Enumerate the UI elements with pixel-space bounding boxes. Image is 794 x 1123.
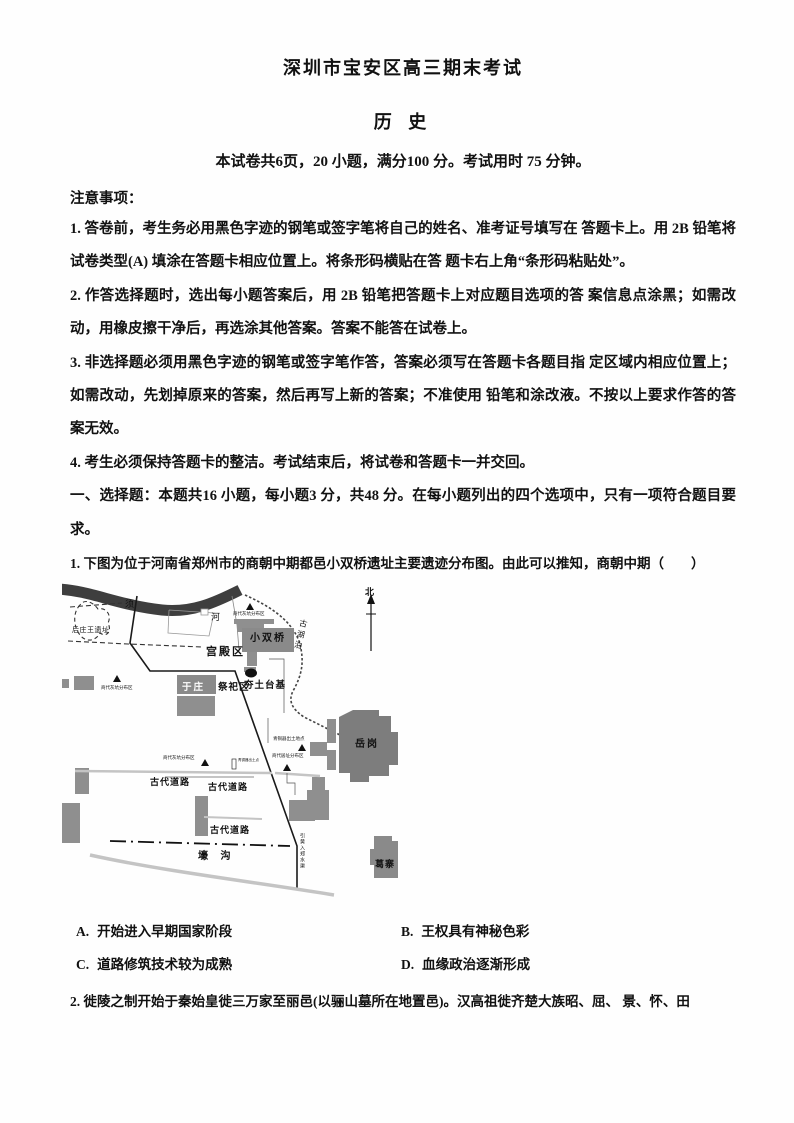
enclosure-notch [201,609,208,615]
map-label-yuegang: 岳岗 [355,735,379,750]
feature-block [177,696,215,716]
map-label-ash-pit-area-road: 商代灰坑分布区 [163,755,195,761]
ancient-road-line [204,817,262,819]
map-label-ash-pit-area-left: 商代灰坑分布区 [101,685,133,691]
page-title: 深圳市宝安区高三期末考试 [70,54,736,80]
q1-option-a: A.开始进入早期国家阶段 [76,915,401,948]
feature-block [310,742,327,756]
map-label-north: 北 [365,585,374,598]
feature-block [289,800,315,821]
ash-pit-marker [113,675,121,682]
map-label-canal: 引黄入郑水渠 [298,833,305,869]
q1-option-c-label: C. [76,957,89,972]
q1-option-c: C.道路修筑技术较为成熟 [76,948,401,981]
dwelling-site-marker [283,764,291,771]
notice-item-2: 2. 作答选择题时，选出每小题答案后，用 2B 铅笔把答题卡上对应题目选项的答 … [70,280,736,347]
map-label-xiaoshuangqiao: 小双桥 [250,629,286,644]
q1-options-row-2: C.道路修筑技术较为成熟 D.血缘政治逐渐形成 [70,948,736,981]
map-label-yuzhuang: 于庄 [182,679,205,693]
map-label-houzhuangwang-site: 后庄王遗址 [72,625,110,635]
notice-item-3: 3. 非选择题必须用黑色字迹的钢笔或签字笔作答，答案必须写在答题卡各题目指 定区… [70,347,736,447]
map-label-river-char1: 须 [125,597,134,610]
feature-block [327,750,336,770]
q1-option-a-label: A. [76,924,89,939]
map-label-palace-area: 宫殿区 [206,643,245,659]
ancient-road-line [275,773,320,776]
question-1-text: 1. 下图为位于河南省郑州市的商朝中期都邑小双桥遗址主要遗迹分布图。由此可以推知… [70,549,736,579]
bronze-site-marker [298,744,306,751]
exam-info-line: 本试卷共6页，20 小题，满分100 分。考试用时 75 分钟。 [70,150,736,171]
map-label-dwelling-area: 商代居址分布区 [272,753,304,759]
q1-option-b-text: 王权具有神秘色彩 [421,924,529,939]
section1-heading: 一、选择题：本题共16 小题，每小题3 分，共48 分。在每小题列出的四个选项中… [70,480,736,547]
q1-option-a-text: 开始进入早期国家阶段 [97,924,232,939]
map-label-moat: 壕 沟 [198,847,236,862]
feature-block [234,619,274,624]
feature-block [74,676,94,690]
map-label-gezhai: 葛寨 [375,857,395,870]
q1-option-d-label: D. [401,957,414,972]
map-label-small-site: 青铜器出土点 [238,758,259,763]
q1-option-c-text: 道路修筑技术较为成熟 [97,957,232,972]
ancient-road-line [75,771,272,773]
feature-block [195,796,208,836]
subject-title: 历 史 [70,108,736,134]
notice-item-4: 4. 考生必须保持答题卡的整洁。考试结束后，将试卷和答题卡一并交回。 [70,447,736,480]
leader-line [287,773,295,795]
q1-option-d: D.血缘政治逐渐形成 [401,948,530,981]
q1-option-d-text: 血缘政治逐渐形成 [422,957,530,972]
map-label-ancient-road-1: 古代道路 [150,775,190,788]
map-label-bronze-excavation-site: 青铜器出土地点 [273,736,305,742]
feature-block [62,679,69,688]
q1-option-b: B.王权具有神秘色彩 [401,915,529,948]
feature-block [247,652,257,666]
map-label-rammed-earth-platform: 夯土台基 [244,677,286,691]
notice-item-1: 1. 答卷前，考生务必用黑色字迹的钢笔或签字笔将自己的姓名、准考证号填写在 答题… [70,213,736,280]
feature-block [312,777,325,790]
question-2-text: 2. 徙陵之制开始于秦始皇徙三万家至丽邑(以骊山墓所在地置邑)。汉高祖徙齐楚大族… [70,987,736,1017]
map-label-river-char2: 河 [211,610,220,623]
moat-line [110,841,290,846]
map-label-ancient-road-3: 古代道路 [210,823,250,836]
feature-block [327,719,336,743]
q1-option-b-label: B. [401,924,413,939]
xiaoshuangqiao-site-map: 须 河 后庄王遗址 商代灰坑分布区 小双桥 宫殿区 夯土台基 于庄 祭祀区 商代… [62,583,462,915]
ash-pit-marker [246,603,254,610]
map-label-sacrificial-area: 祭祀区 [218,679,250,693]
map-label-ancient-road-2: 古代道路 [208,780,248,793]
map-label-ash-pit-area-top: 商代灰坑分布区 [233,611,265,617]
river-shape [62,589,240,611]
small-site-marker [232,759,236,769]
ash-pit-marker [201,759,209,766]
exam-paper-page: 深圳市宝安区高三期末考试 历 史 本试卷共6页，20 小题，满分100 分。考试… [0,0,794,1123]
feature-block [62,803,80,843]
q1-options-row-1: A.开始进入早期国家阶段 B.王权具有神秘色彩 [70,915,736,948]
notice-heading: 注意事项： [70,185,736,213]
